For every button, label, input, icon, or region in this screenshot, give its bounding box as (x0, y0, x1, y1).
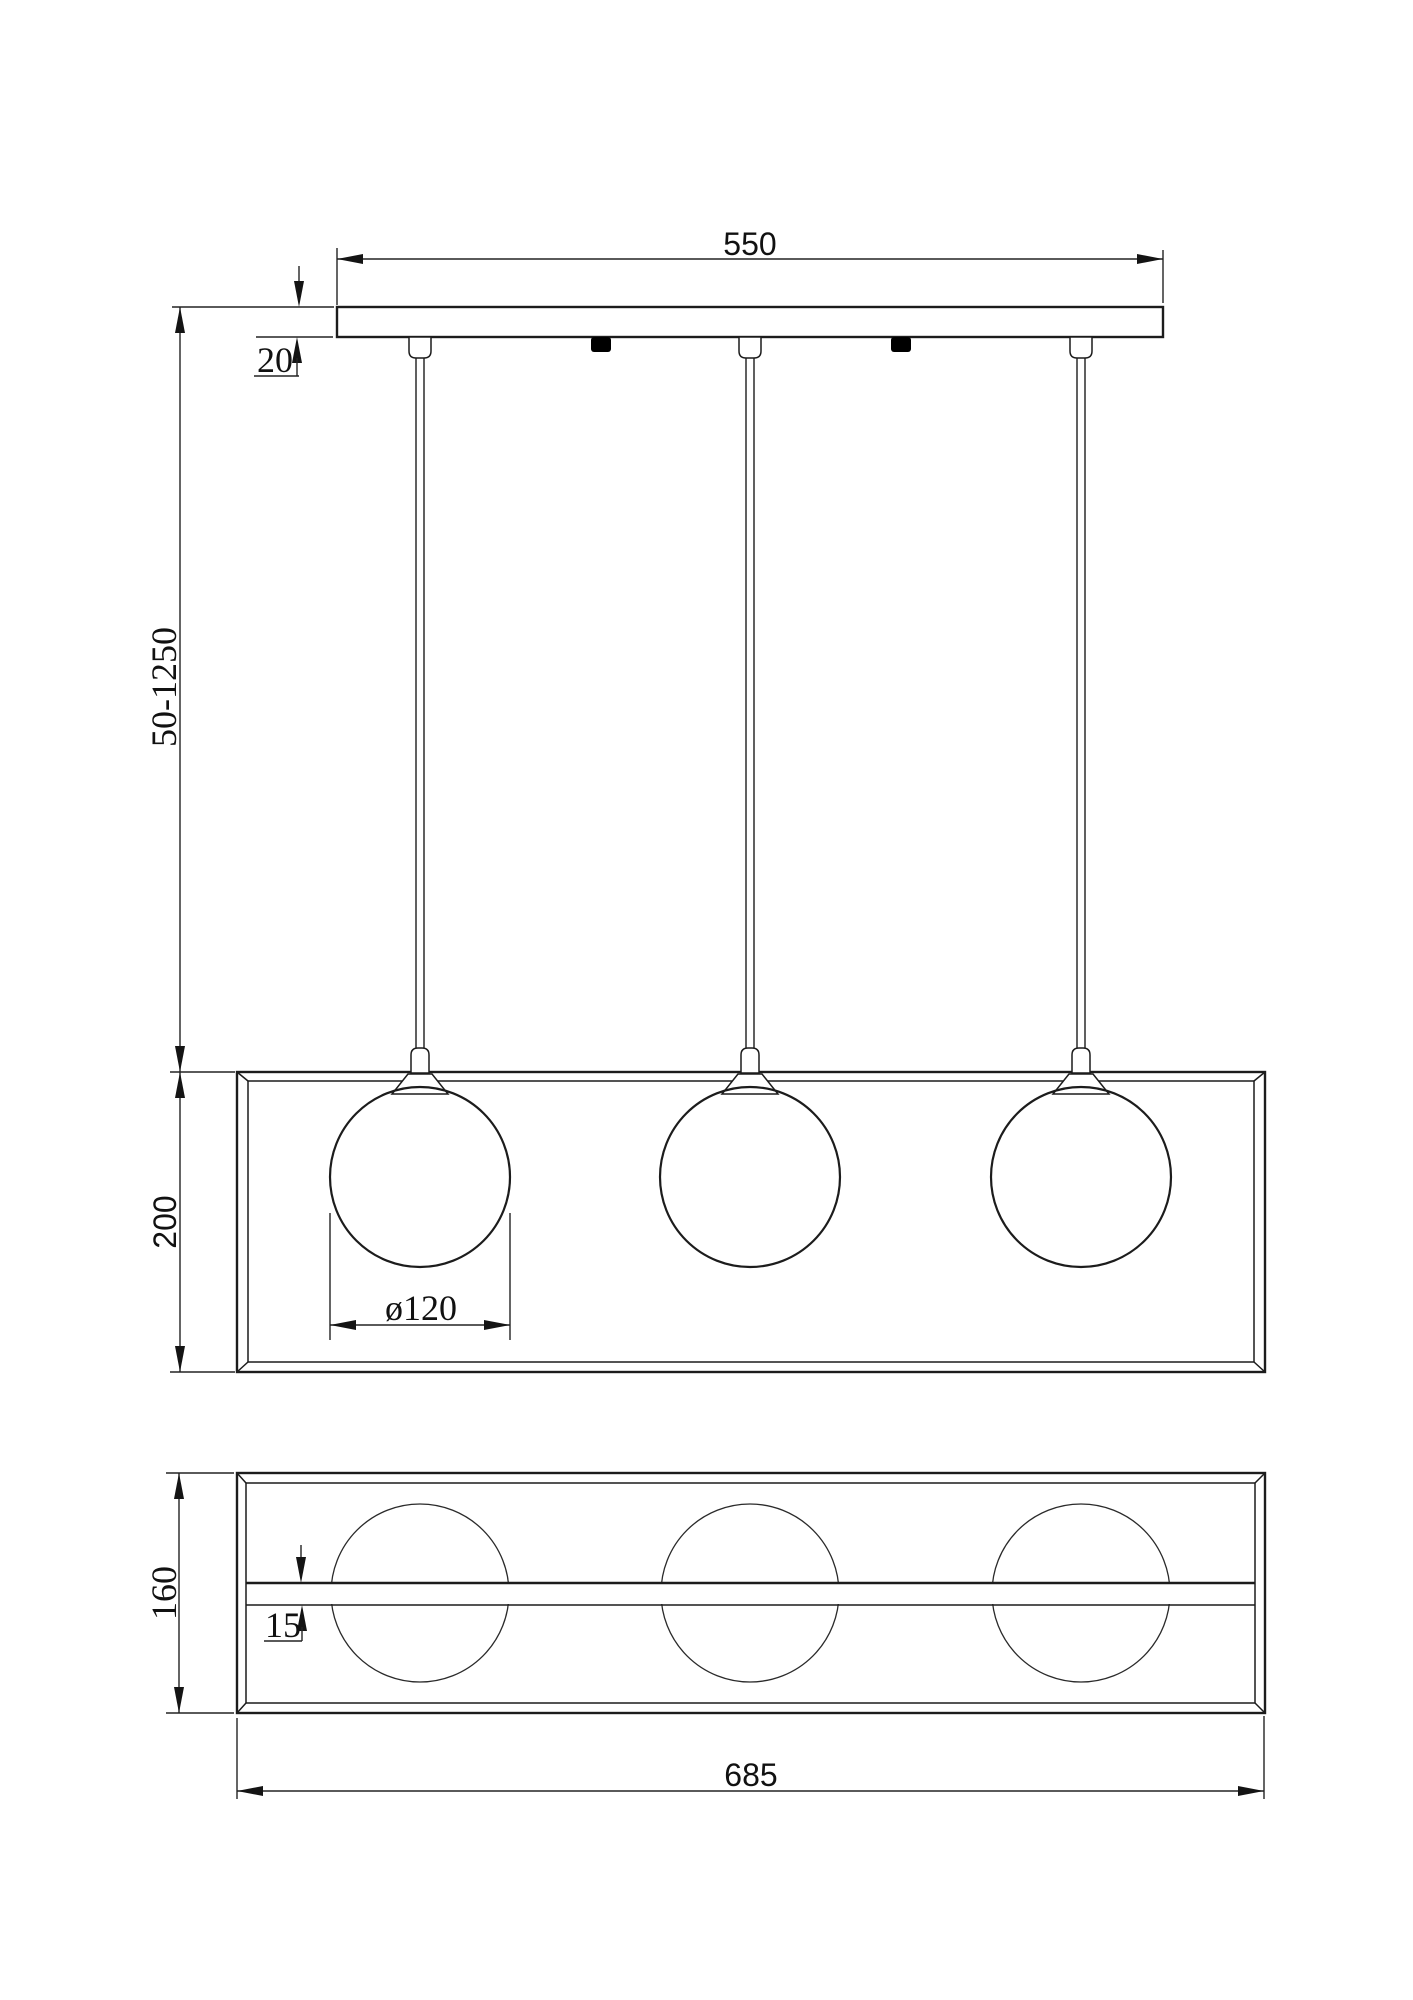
cord-connector (409, 337, 431, 358)
cord-ferrule (1072, 1048, 1090, 1073)
dim-plate-width: 550 (337, 226, 1163, 305)
arrowhead-down (294, 281, 304, 307)
arrowhead-up (175, 1072, 185, 1098)
cord-connector (1070, 337, 1092, 358)
dim-label-plate-thickness: 20 (257, 340, 293, 380)
suspension-cord-3 (1070, 337, 1092, 1073)
dim-suspension-height: 50-1250 (144, 307, 185, 1072)
mount-screw-left (591, 337, 611, 352)
frame-miter (237, 1473, 246, 1483)
arrowhead-left (237, 1786, 263, 1796)
arrowhead-up (174, 1473, 184, 1499)
dim-label-bar-thickness: 15 (265, 1605, 301, 1645)
arrowhead-right (1137, 254, 1163, 264)
frame-miter (1255, 1703, 1265, 1713)
arrowhead-left (337, 254, 363, 264)
dim-label-frame-width: 685 (724, 1757, 777, 1793)
dim-label-frame-depth: 160 (144, 1566, 184, 1620)
frame-miter (1255, 1473, 1265, 1483)
dim-label-suspension-height: 50-1250 (144, 627, 184, 747)
arrowhead-up (175, 307, 185, 333)
suspension-cord-2 (739, 337, 761, 1073)
globe-outline (660, 1087, 840, 1267)
globe-outline (991, 1087, 1171, 1267)
center-bar (246, 1583, 1255, 1605)
cord-ferrule (411, 1048, 429, 1073)
lamp-technical-drawing: 550 20 50-1250 200 (0, 0, 1413, 2000)
bottom-view: 160 15 685 (144, 1473, 1265, 1799)
dim-label-frame-height: 200 (147, 1195, 183, 1248)
center-bar-fill (246, 1584, 1255, 1604)
technical-drawing-page: 550 20 50-1250 200 (0, 0, 1413, 2000)
dim-globe-diameter: ø120 (330, 1213, 510, 1340)
dim-frame-height: 200 (147, 1072, 235, 1372)
arrowhead-down (174, 1687, 184, 1713)
globe-socket (1053, 1074, 1109, 1094)
globe-outline (330, 1087, 510, 1267)
suspension-cord-1 (409, 337, 431, 1073)
cord-ferrule (741, 1048, 759, 1073)
glass-globe-1 (330, 1074, 510, 1267)
frame-miter (1254, 1072, 1265, 1081)
globe-socket (722, 1074, 778, 1094)
glass-globe-2 (660, 1074, 840, 1267)
front-view: 550 20 50-1250 200 (144, 226, 1265, 1372)
dim-frame-width: 685 (237, 1716, 1264, 1799)
globe-socket (392, 1074, 448, 1094)
mount-screw-right (891, 337, 911, 352)
dim-plate-thickness: 20 (172, 266, 334, 380)
arrowhead-right (484, 1320, 510, 1330)
frame-miter (237, 1072, 248, 1081)
dim-label-globe-diameter: ø120 (385, 1288, 457, 1328)
frame-miter (1254, 1362, 1265, 1372)
arrowhead-down (175, 1046, 185, 1072)
glass-globe-3 (991, 1074, 1171, 1267)
arrowhead-down (296, 1557, 306, 1583)
ceiling-plate (337, 307, 1163, 337)
frame-miter (237, 1703, 246, 1713)
cord-connector (739, 337, 761, 358)
dim-frame-depth: 160 (144, 1473, 234, 1713)
dim-label-plate-width: 550 (723, 226, 776, 262)
arrowhead-left (330, 1320, 356, 1330)
arrowhead-right (1238, 1786, 1264, 1796)
frame-miter (237, 1362, 248, 1372)
arrowhead-down (175, 1346, 185, 1372)
